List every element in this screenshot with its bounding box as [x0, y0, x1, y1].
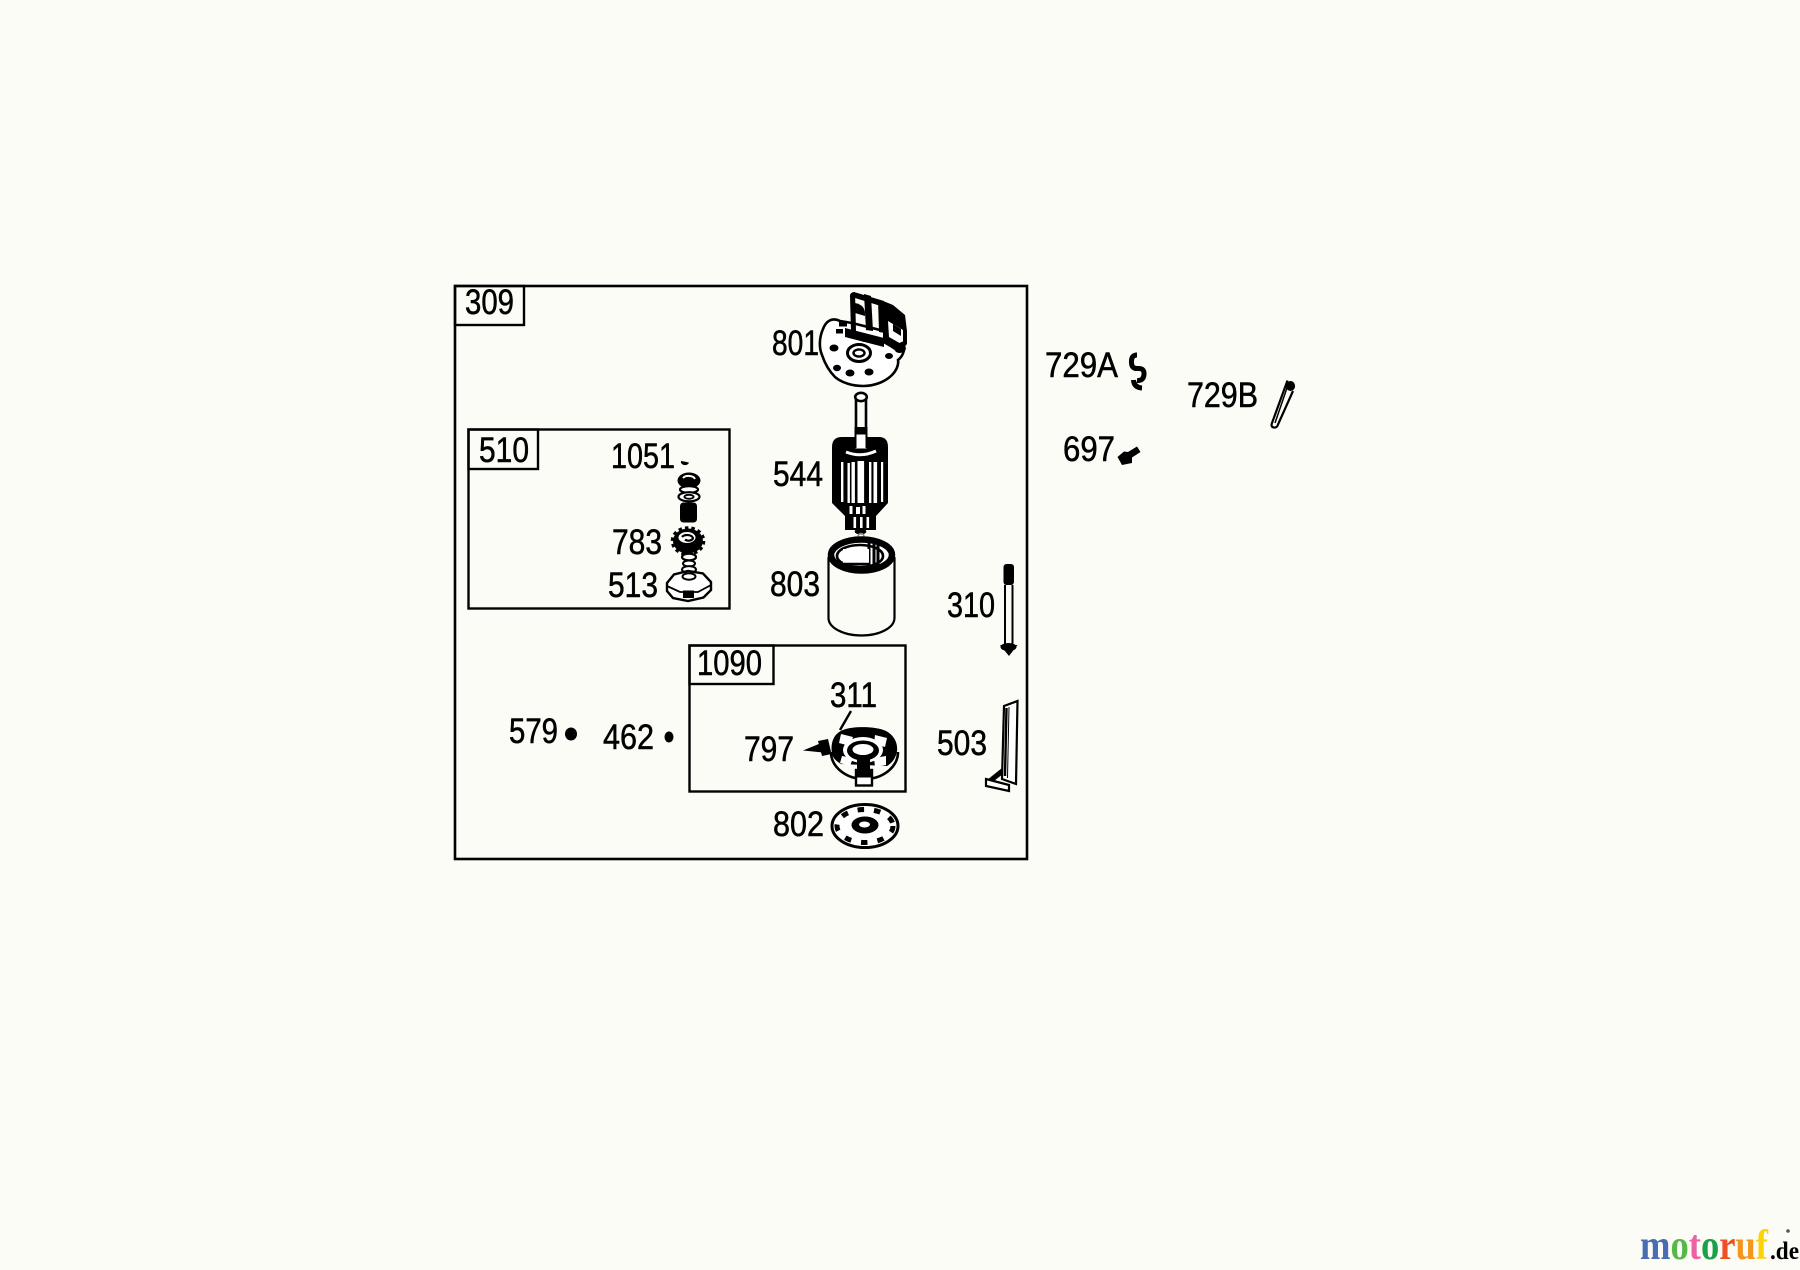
svg-text:801: 801	[772, 324, 819, 363]
svg-text:783: 783	[612, 523, 662, 562]
svg-text:579: 579	[509, 712, 558, 751]
svg-text:803: 803	[770, 565, 820, 604]
svg-text:802: 802	[773, 805, 824, 844]
svg-text:797: 797	[744, 730, 794, 769]
svg-text:697: 697	[1063, 430, 1115, 469]
svg-text:.de: .de	[1770, 1238, 1799, 1265]
svg-text:729B: 729B	[1187, 376, 1258, 415]
svg-text:462: 462	[603, 718, 654, 757]
svg-text:1051: 1051	[611, 437, 675, 476]
svg-text:503: 503	[937, 724, 987, 763]
svg-text:510: 510	[479, 431, 529, 470]
svg-text:513: 513	[608, 566, 658, 605]
svg-text:309: 309	[465, 283, 514, 322]
svg-text:310: 310	[947, 586, 995, 625]
svg-text:729A: 729A	[1045, 346, 1119, 385]
svg-text:1090: 1090	[697, 644, 762, 683]
svg-text:544: 544	[773, 455, 823, 494]
svg-text:311: 311	[830, 676, 877, 715]
svg-text:motoruf: motoruf	[1640, 1223, 1769, 1269]
